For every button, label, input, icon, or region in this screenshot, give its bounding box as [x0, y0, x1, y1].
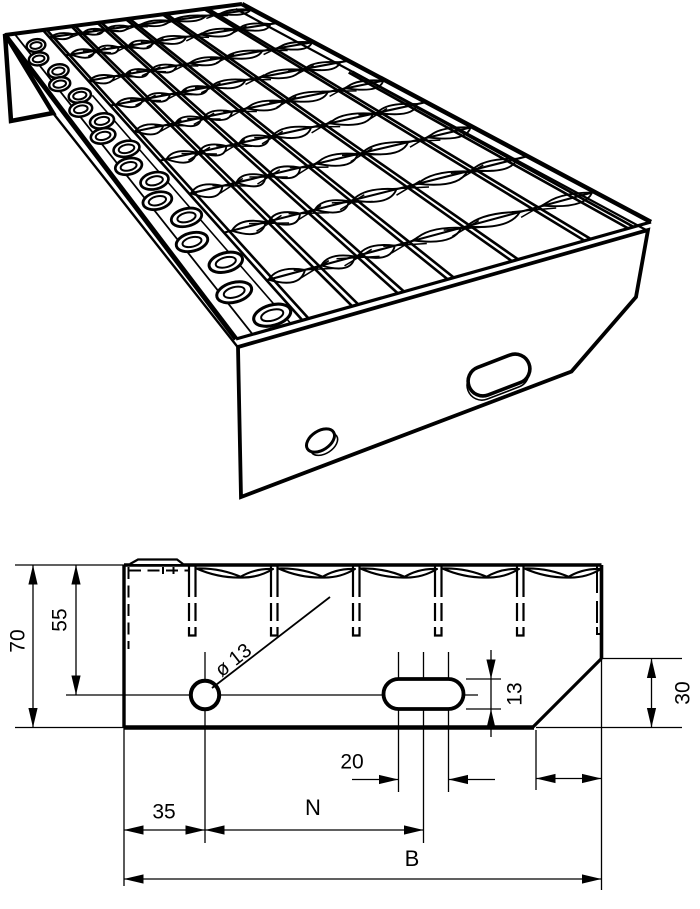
- svg-text:55: 55: [49, 608, 72, 631]
- svg-text:13: 13: [504, 682, 527, 705]
- svg-text:B: B: [405, 846, 420, 871]
- svg-text:30: 30: [672, 681, 695, 704]
- svg-text:70: 70: [7, 629, 30, 652]
- svg-text:N: N: [305, 795, 321, 820]
- svg-text:35: 35: [152, 801, 175, 824]
- svg-text:20: 20: [340, 751, 363, 774]
